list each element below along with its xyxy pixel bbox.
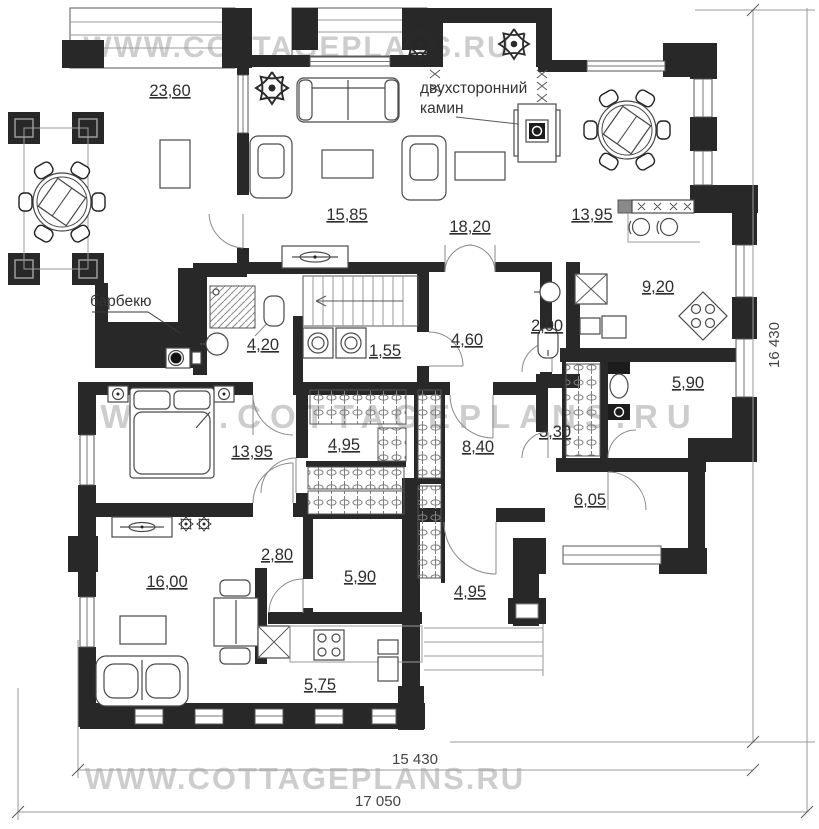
family-coffee-table [455,152,505,180]
room-label-room605: 6,05 [574,491,606,509]
dimension-width-outer: 17 050 [355,793,401,810]
room-label-lounge: 16,00 [146,573,187,591]
room-label-kitchen2: 5,75 [304,676,336,694]
room-label-wc: 2,00 [531,317,563,335]
room-label-terrace: 23,60 [149,82,190,100]
kitchen2-furniture [258,626,422,681]
room-label-hall: 4,60 [451,331,483,349]
staircase [303,276,418,326]
fireplace-label-line1: двухсторонний [420,80,527,97]
room-label-wardrobe2: 3,30 [539,423,571,441]
room-label-bathroom2: 5,90 [672,374,704,392]
plant-4 [176,514,196,534]
floor-plan-page: WWW.COTTAGEPLANS.RU WWW.COTTAGEPLANS.RU … [0,0,819,829]
room-label-hallway: 2,80 [261,546,293,564]
room-label-room590: 5,90 [344,568,376,586]
plant-1 [249,65,294,110]
living-sofa [297,78,399,122]
room-label-corridor: 8,40 [462,438,494,456]
room-label-living: 15,85 [326,206,367,224]
room-label-wardrobe1: 4,95 [328,436,360,454]
room-label-porch: 4,95 [454,583,486,601]
room-label-kitchen: 9,20 [642,278,674,296]
bar-counter [618,200,694,236]
living-armchair-left [250,136,292,198]
fireplace-label-line2: камин [420,100,464,117]
lounge-furniture [96,517,258,706]
dimension-width-inner: 15 430 [392,751,438,768]
living-armchair-right [402,136,446,200]
room-label-bathroom1: 4,20 [247,336,279,354]
room-label-bedroom: 13,95 [231,443,272,461]
living-coffee-table [322,150,373,178]
tv-console [282,246,348,268]
floor-plan-drawing: WWW.COTTAGEPLANS.RU WWW.COTTAGEPLANS.RU … [0,0,819,829]
room-label-family: 18,20 [449,218,490,236]
fireplace-leader-line [456,117,518,124]
terrace-bench [160,140,190,188]
bathroom2-fixtures [608,362,630,420]
room-label-dining: 13,95 [571,206,612,224]
dimension-height: 16 430 [766,322,783,368]
kitchen-counter [575,213,727,340]
plant-5 [194,514,214,534]
watermark-bottom: WWW.COTTAGEPLANS.RU [85,761,525,796]
terrace-table [19,160,105,243]
laundry-washers [303,328,366,358]
dining-table [584,88,670,171]
barbecue-label: барбекю [90,293,152,310]
porch-steps [424,624,543,676]
room-label-laundry: 1,55 [369,342,401,360]
